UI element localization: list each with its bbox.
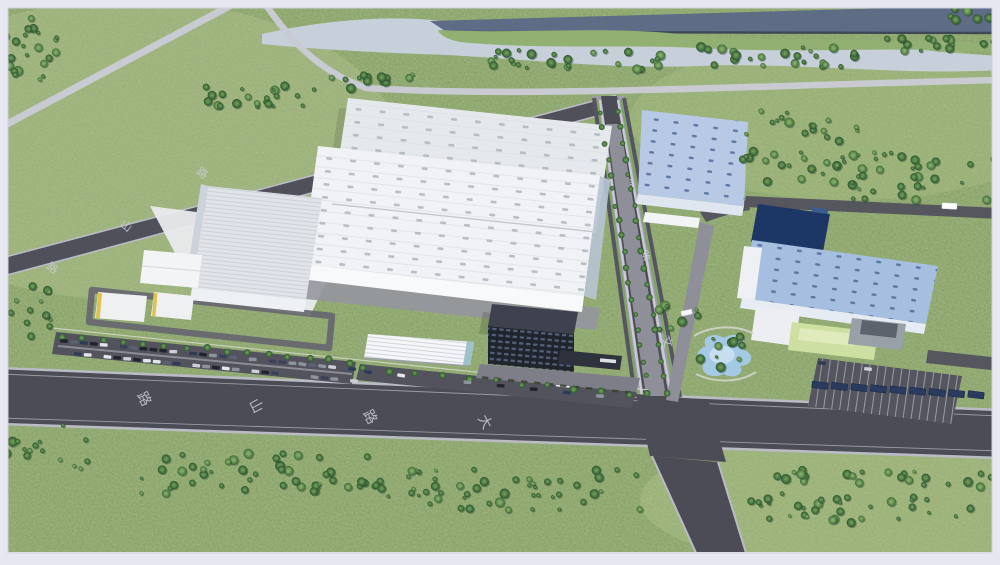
tree [158, 465, 167, 474]
tree [910, 498, 914, 502]
tree [204, 97, 213, 106]
tree [924, 497, 929, 502]
tree [711, 337, 715, 341]
tree [29, 282, 37, 290]
parked-car [143, 359, 151, 363]
tree [963, 477, 973, 487]
tree [573, 482, 580, 489]
tree [951, 15, 961, 25]
tree [14, 298, 19, 303]
tree [544, 478, 551, 485]
tree [580, 499, 586, 505]
tree [799, 151, 803, 155]
tree [464, 491, 470, 497]
tree [714, 342, 722, 350]
tree [47, 289, 52, 294]
tree [377, 484, 385, 492]
tree [495, 497, 505, 507]
tree [801, 155, 807, 161]
tree [876, 166, 884, 174]
tree [842, 160, 846, 164]
tree [590, 489, 599, 498]
tree [272, 88, 275, 91]
tree [868, 504, 872, 508]
tree [760, 63, 765, 68]
tree [434, 469, 437, 472]
tree [882, 152, 887, 157]
tree [84, 458, 90, 464]
tree [423, 489, 429, 495]
rendered-image: 路山路大路路文路山路 [0, 0, 1000, 565]
street-tree [160, 343, 166, 349]
tree [980, 40, 987, 47]
tree [896, 517, 900, 521]
street-tree [346, 360, 353, 367]
tree [23, 33, 28, 38]
street-tree [519, 382, 525, 388]
tree [516, 62, 521, 67]
parked-car [261, 370, 269, 374]
tree [792, 470, 797, 475]
tree [253, 471, 258, 476]
tree [829, 178, 838, 187]
tree [40, 448, 45, 453]
street-tree [628, 186, 634, 192]
parked-car [330, 377, 338, 381]
street-tree [656, 342, 662, 348]
street-tree [637, 248, 644, 255]
parked-car [288, 361, 296, 365]
tree [24, 25, 32, 33]
tree [312, 87, 316, 91]
tree [310, 487, 318, 495]
tree [914, 163, 921, 170]
truck [942, 203, 957, 210]
tree [505, 506, 512, 513]
tree [743, 154, 748, 159]
tree [758, 108, 763, 113]
tree [41, 74, 45, 78]
tree [785, 111, 789, 115]
street-tree [637, 342, 643, 348]
tree [292, 477, 300, 485]
tree [58, 457, 63, 462]
street-tree [120, 339, 126, 345]
tree [982, 195, 991, 204]
tree [872, 150, 876, 154]
tree [408, 490, 414, 496]
street-tree [284, 354, 290, 360]
tree [54, 35, 58, 39]
tree [834, 163, 839, 168]
tree [494, 55, 498, 59]
tree [179, 452, 185, 458]
tree [189, 480, 195, 486]
tree [405, 74, 413, 82]
street-tree [626, 392, 632, 398]
parked-car [139, 347, 147, 351]
parked-car [596, 394, 604, 398]
tree [780, 49, 790, 59]
tree [377, 72, 387, 82]
tree [874, 157, 878, 161]
tree [280, 81, 289, 90]
tree [976, 482, 985, 491]
street-tree [493, 377, 499, 383]
tree [758, 53, 765, 60]
tree [912, 470, 916, 474]
tree [715, 355, 718, 358]
tree [756, 499, 762, 505]
tree [717, 44, 726, 53]
tree [52, 48, 60, 56]
tree [247, 477, 252, 482]
tree [245, 93, 252, 100]
tree [889, 151, 893, 155]
tree [140, 477, 143, 480]
tree [45, 54, 52, 61]
parked-car [70, 340, 78, 344]
tree [39, 299, 43, 303]
tree [960, 181, 963, 184]
tree [486, 501, 491, 506]
tree [28, 15, 35, 22]
tree [897, 34, 906, 43]
tree [508, 57, 514, 63]
tree [749, 147, 758, 156]
parked-car [60, 339, 68, 343]
tree [787, 163, 791, 167]
tree [861, 195, 867, 201]
street-tree [651, 326, 658, 333]
tree [530, 507, 534, 511]
tree [849, 472, 856, 479]
street-tree [266, 351, 273, 358]
tree [217, 103, 223, 109]
tree [72, 464, 76, 468]
street-tree [644, 373, 649, 378]
tree [808, 49, 812, 53]
tree [8, 310, 14, 316]
tree [406, 474, 410, 478]
parked-car [153, 360, 161, 364]
tree [24, 319, 30, 325]
tree [818, 497, 824, 503]
tree [637, 506, 643, 512]
tree [232, 99, 241, 108]
tree [838, 64, 843, 69]
tree [927, 511, 931, 515]
street-tree [224, 349, 231, 356]
tree [489, 61, 497, 69]
street-tree [633, 312, 638, 317]
tree [27, 307, 33, 313]
tree [386, 494, 390, 498]
tree [905, 476, 913, 484]
parked-car [84, 353, 92, 357]
tree [763, 177, 772, 186]
street-tree [608, 172, 614, 178]
tree [363, 77, 372, 86]
roof-texture [638, 110, 748, 206]
tree [966, 505, 974, 513]
tree [495, 48, 502, 55]
tree [603, 49, 608, 54]
tree [316, 454, 323, 461]
street-tree [625, 280, 631, 286]
street-tree [140, 341, 147, 348]
tree [357, 477, 366, 486]
tree [78, 466, 82, 470]
tree [773, 472, 781, 480]
tree [599, 489, 603, 493]
tree [279, 450, 286, 457]
tree [274, 93, 280, 99]
tree [203, 84, 210, 91]
tree [27, 332, 35, 340]
tree [15, 439, 20, 444]
tree [417, 494, 420, 497]
tree [821, 128, 827, 134]
tree [346, 83, 356, 93]
tree [240, 87, 244, 91]
tree [747, 497, 755, 505]
tree [736, 357, 741, 362]
tree [859, 172, 867, 180]
parked-car [169, 350, 177, 354]
parked-car [100, 343, 108, 347]
tree [38, 77, 42, 81]
street-tree [602, 141, 608, 147]
street-tree [641, 360, 646, 365]
street-tree [617, 124, 623, 130]
tree [219, 91, 226, 98]
tree [527, 483, 531, 487]
tree [954, 514, 958, 518]
street-tree [618, 232, 624, 238]
tree [887, 497, 896, 506]
parked-car [172, 362, 180, 366]
tree [860, 470, 865, 475]
tree [204, 460, 210, 466]
tree [978, 471, 984, 477]
tree [677, 317, 687, 327]
tree [177, 466, 186, 475]
tree [427, 501, 432, 506]
street-tree [628, 297, 634, 303]
tree [925, 35, 932, 42]
parked-car [229, 355, 237, 359]
tree [855, 479, 864, 488]
street-tree [616, 217, 622, 223]
tree [624, 48, 633, 57]
tree [12, 72, 18, 78]
tree [502, 49, 511, 58]
tree [884, 468, 891, 475]
tree [594, 473, 603, 482]
tree [696, 354, 705, 363]
tree [12, 37, 20, 45]
street-tree [646, 294, 653, 301]
tree [694, 312, 701, 319]
street-tree [307, 355, 314, 362]
tree [911, 195, 920, 204]
tree [838, 501, 842, 505]
office-tower-facade [488, 326, 574, 372]
tree [770, 120, 775, 125]
tree [32, 442, 38, 448]
street-tree [570, 386, 578, 394]
tree [973, 14, 982, 23]
tree [914, 182, 922, 190]
parked-car [350, 379, 358, 383]
tree [472, 484, 480, 492]
street-tree [658, 359, 663, 364]
tree [294, 451, 303, 460]
parked-car [113, 356, 121, 360]
tree [844, 494, 851, 501]
tree [911, 166, 915, 170]
tree [858, 516, 864, 522]
parked-car [232, 368, 240, 372]
tree [813, 53, 818, 58]
parked-car [530, 387, 538, 391]
street-tree [184, 345, 190, 351]
tree [531, 493, 535, 497]
tree [83, 437, 88, 442]
small-flat-building [151, 292, 194, 320]
parked-car [497, 384, 505, 388]
tree [811, 506, 819, 514]
tree [821, 172, 825, 176]
street-tree [100, 337, 107, 344]
tree [531, 481, 536, 486]
tree [432, 477, 437, 482]
tree [822, 61, 829, 68]
street-tree [606, 157, 611, 162]
tree [784, 117, 794, 127]
tree [926, 161, 934, 169]
street-tree [644, 282, 649, 287]
parked-car [209, 354, 217, 358]
tree [22, 447, 26, 451]
tree [851, 196, 855, 200]
tree [272, 455, 280, 463]
roof-texture [192, 186, 322, 300]
tree [557, 478, 563, 484]
tree [408, 467, 417, 476]
tree [796, 469, 805, 478]
tree [225, 459, 231, 465]
tree [704, 46, 712, 54]
street-tree [544, 382, 550, 388]
street-tree [204, 344, 211, 351]
tree [329, 75, 335, 81]
tree [655, 56, 660, 61]
tree [930, 174, 939, 183]
street-tree [610, 186, 615, 191]
tree [829, 43, 838, 52]
tree [910, 173, 917, 180]
tree [654, 61, 662, 69]
tree [781, 474, 791, 484]
tree [556, 492, 562, 498]
street-tree [244, 349, 251, 356]
tree [847, 518, 856, 527]
scene-svg: 路山路大路路文路山路 [0, 0, 1000, 565]
tree [280, 482, 287, 489]
street-tree [412, 370, 418, 376]
tree [139, 491, 143, 495]
tree [942, 35, 949, 42]
tree [557, 508, 561, 512]
street-tree [615, 109, 620, 114]
tree [364, 453, 371, 460]
tree [219, 483, 224, 488]
tree [243, 449, 253, 459]
tree [770, 151, 778, 159]
street-tree [613, 204, 618, 209]
tree [25, 53, 29, 57]
street-tree [651, 312, 656, 317]
tree [898, 191, 907, 200]
tree [21, 44, 25, 48]
tree [762, 157, 769, 164]
street-tree [644, 390, 651, 397]
tree [828, 516, 837, 525]
tree [748, 57, 752, 61]
tree [170, 481, 178, 489]
street-tree [632, 203, 637, 208]
tree [471, 467, 477, 473]
parked-car [120, 345, 128, 349]
tree [694, 308, 698, 312]
tree [797, 175, 805, 183]
tree [27, 448, 32, 453]
tree [563, 55, 572, 64]
tree [946, 482, 951, 487]
tree [655, 305, 664, 314]
tree [632, 64, 641, 73]
tree [793, 52, 801, 60]
tree [61, 423, 65, 427]
tree [456, 482, 464, 490]
tree [835, 137, 844, 146]
parked-car [202, 365, 210, 369]
tree [480, 477, 489, 486]
tree [836, 507, 844, 515]
tree [711, 61, 718, 68]
tree [650, 58, 655, 63]
tree [897, 473, 905, 481]
tree [512, 476, 519, 483]
street-tree [599, 124, 605, 130]
tree [826, 118, 831, 123]
tree [951, 43, 955, 47]
tree [566, 63, 571, 68]
tree [840, 155, 844, 159]
tree [919, 49, 923, 53]
tree [788, 514, 791, 517]
street-tree [620, 141, 625, 146]
tree [527, 49, 537, 59]
tree [967, 161, 973, 167]
street-tree [386, 368, 394, 376]
tree [802, 130, 809, 137]
tree [590, 50, 596, 56]
parked-car [123, 357, 131, 361]
tree [823, 159, 830, 166]
